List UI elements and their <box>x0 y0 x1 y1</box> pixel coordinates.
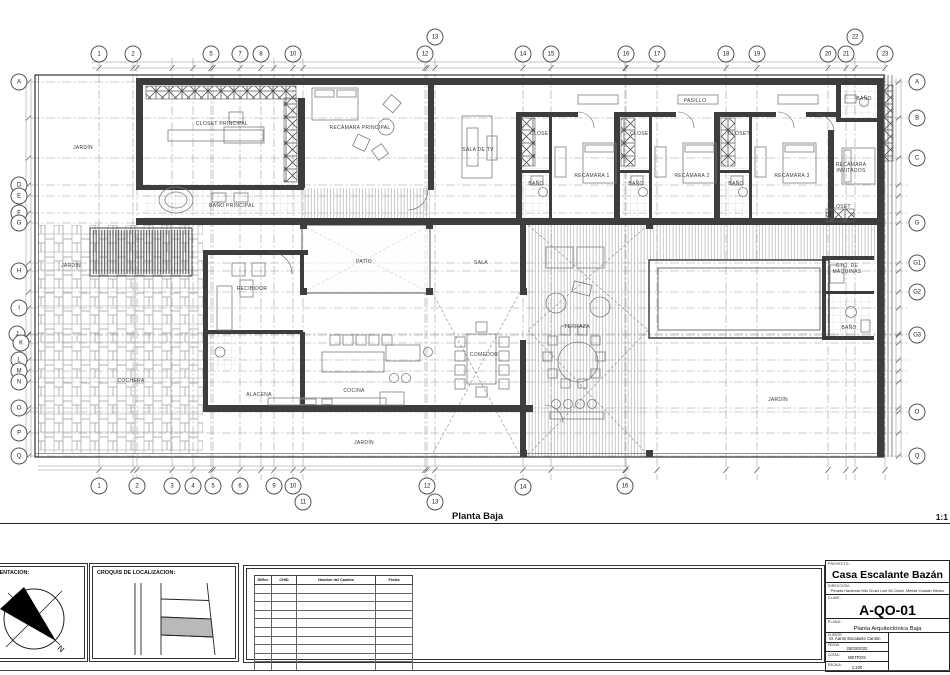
date-value: 25/03/2022 <box>826 647 888 652</box>
drawing-name: Planta Arquitectónica Baja <box>826 626 949 632</box>
north-compass-icon: N <box>0 577 78 657</box>
units-value: METROS <box>826 656 888 661</box>
revisions-panel: IDRevCHIDNombre del CambioFecha <box>243 565 825 663</box>
client-name: Sr. Aaron Escalante Cantón <box>826 637 888 642</box>
floor-plan: 1257810121314151617181920212223123456910… <box>0 0 950 545</box>
revision-row <box>255 645 413 654</box>
project-label: PROYECTO: <box>828 562 850 566</box>
title-block: PROYECTO: Casa Escalante Bazán DIRECCION… <box>825 560 950 672</box>
revision-row <box>255 636 413 645</box>
sheet-code: A-QO-01 <box>826 602 949 618</box>
sheet-bottom-border <box>0 670 950 671</box>
signature-area <box>889 633 949 671</box>
plan-scale-note: 1:1 <box>936 512 948 522</box>
drawing-label: PLANO: <box>828 620 842 624</box>
plan-caption-row: Planta Baja 1:1 <box>0 508 950 524</box>
client-label: CLIENTE: <box>828 633 842 637</box>
revision-row <box>255 627 413 636</box>
revision-row <box>255 593 413 602</box>
revision-column-header: CHID <box>272 576 297 585</box>
revision-row <box>255 602 413 611</box>
revision-table: IDRevCHIDNombre del CambioFecha <box>254 575 413 671</box>
scale-label: ESCALA: <box>828 663 841 667</box>
revision-column-header: Fecha <box>376 576 413 585</box>
revision-column-header: Nombre del Cambio <box>297 576 376 585</box>
sheet-footer: ORIENTACION: N CROQUIS DE LOCALIZACION: <box>0 558 950 675</box>
location-sketch <box>95 579 235 657</box>
stairs <box>90 228 192 276</box>
orientation-label: ORIENTACION: <box>0 570 29 576</box>
revision-row <box>255 585 413 594</box>
plan-title: Planta Baja <box>452 511 503 522</box>
patio-outline <box>302 225 430 293</box>
revision-row <box>255 653 413 662</box>
location-sketch-panel: CROQUIS DE LOCALIZACION: <box>89 563 239 662</box>
orientation-panel: ORIENTACION: N <box>0 563 88 662</box>
floor-plan-drawing <box>0 0 950 545</box>
walls <box>136 78 884 457</box>
revision-column-header: IDRev <box>255 576 272 585</box>
sheet-code-label: CLAVE: <box>828 596 841 600</box>
croquis-label: CROQUIS DE LOCALIZACION: <box>97 570 175 576</box>
address-value: Privada Hacienda Villa Chulul Lote 56 Ch… <box>826 589 949 593</box>
date-label: FECHA: <box>828 643 840 647</box>
address-label: DIRECCION: <box>828 584 850 588</box>
project-name: Casa Escalante Bazán <box>826 569 949 581</box>
drawing-sheet: 1257810121314151617181920212223123456910… <box>0 0 950 675</box>
revision-row <box>255 619 413 628</box>
north-letter: N <box>56 644 66 655</box>
pool <box>649 260 829 338</box>
revision-row <box>255 610 413 619</box>
units-label: COTAS: <box>828 653 840 657</box>
